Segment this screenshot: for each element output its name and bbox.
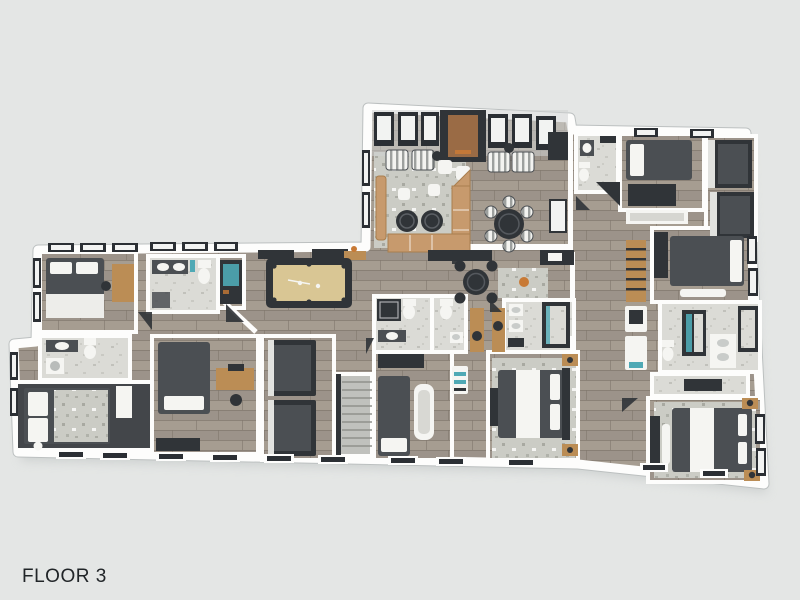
lamp-icon — [567, 357, 573, 363]
armchair — [512, 152, 534, 172]
tv-console — [428, 250, 492, 261]
pillow — [164, 396, 204, 410]
pillow — [738, 414, 747, 436]
duvet — [54, 390, 108, 442]
monitor-icon — [228, 364, 244, 371]
desk-chair — [230, 394, 242, 406]
desk — [216, 368, 254, 390]
pillow — [76, 262, 98, 274]
pool-table — [266, 258, 352, 308]
pillow — [630, 144, 644, 176]
door-mat — [258, 250, 294, 259]
bench — [662, 424, 670, 464]
pillow — [28, 392, 48, 416]
lamp-icon — [567, 447, 573, 453]
armchair — [412, 150, 434, 170]
armchair — [488, 152, 510, 172]
desk — [112, 264, 134, 302]
desk-chair — [472, 331, 482, 341]
toilet — [579, 162, 590, 168]
desk-chair — [101, 281, 111, 291]
dresser — [116, 386, 132, 418]
artwork — [550, 200, 566, 232]
wardrobe — [650, 416, 660, 470]
lamp-icon — [749, 472, 755, 478]
floorplan-page: FLOOR 3 — [0, 0, 800, 600]
bath-mat — [508, 338, 524, 347]
ottoman — [34, 442, 43, 451]
master-a-furniture — [490, 354, 578, 458]
headboard — [562, 368, 570, 440]
dresser — [654, 232, 668, 278]
closet-mat — [684, 379, 722, 391]
towel — [190, 260, 195, 272]
wardrobe — [156, 438, 200, 451]
blanket — [46, 294, 104, 318]
toilet — [662, 340, 674, 347]
aquarium-icon — [223, 264, 239, 286]
pillow — [550, 404, 560, 430]
pillow — [381, 438, 407, 452]
lamp-icon — [747, 400, 753, 406]
credenza — [548, 132, 568, 160]
fireplace — [440, 110, 486, 162]
floorplan-render — [0, 0, 800, 600]
pillow — [28, 418, 48, 442]
side-table — [504, 143, 514, 153]
toilet — [198, 260, 211, 268]
floor-label: FLOOR 3 — [22, 566, 107, 588]
shower — [600, 136, 616, 143]
armchair — [386, 150, 408, 170]
shower-mat — [152, 292, 170, 308]
wardrobe — [628, 184, 676, 206]
pillow — [738, 442, 747, 464]
kitchen-sink — [548, 253, 562, 261]
pillow — [550, 374, 560, 400]
bed-runner — [690, 408, 714, 472]
desk-chair — [493, 321, 503, 331]
desk — [470, 308, 484, 352]
plant-icon — [519, 277, 529, 287]
toilet — [84, 338, 96, 345]
side-table — [432, 151, 442, 161]
door-mat — [312, 249, 348, 258]
bench — [680, 289, 726, 297]
pillow — [730, 240, 742, 282]
games-area — [258, 246, 366, 308]
dresser — [378, 354, 424, 368]
bed-runner — [516, 370, 540, 438]
room-stairwell — [336, 374, 372, 456]
pillow — [50, 262, 72, 274]
aquarium-cabinet — [220, 260, 242, 304]
